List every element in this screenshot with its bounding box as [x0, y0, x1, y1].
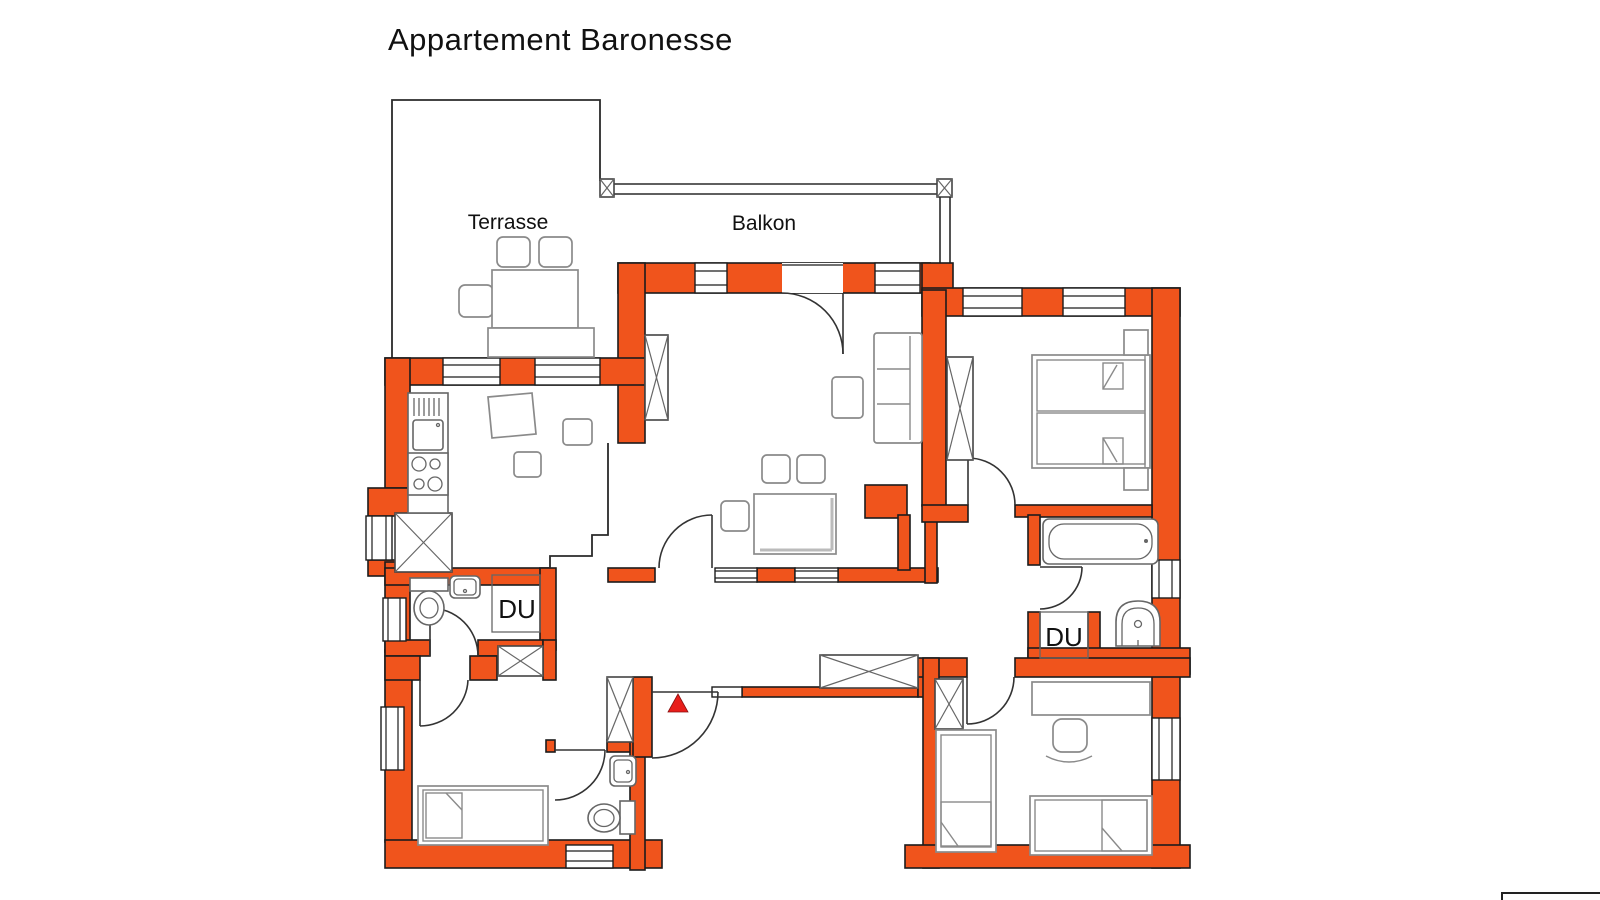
sofa [874, 333, 922, 443]
double-bed [1032, 330, 1150, 490]
kitchen-unit [408, 393, 448, 513]
terrace-furniture [459, 237, 594, 357]
label-du-left: DU [498, 594, 536, 624]
kitchen-partition [550, 443, 608, 568]
wardrobe-bedroom-br-icon [935, 679, 963, 729]
label-du-right: DU [1045, 622, 1083, 652]
wardrobe-living-icon [645, 335, 668, 420]
label-terrasse: Terrasse [468, 211, 549, 234]
kitchen-table [488, 393, 592, 477]
wardrobe-entrance-icon [607, 677, 633, 742]
label-balkon: Balkon [732, 212, 796, 235]
washbasin-wc-icon [610, 756, 636, 786]
page-corner-artifact [1502, 893, 1600, 900]
shaft-bath-left [498, 646, 543, 676]
closet-hall-icon [820, 655, 918, 688]
dining-table-group [721, 455, 836, 554]
toilet-left-icon [410, 578, 448, 625]
entrance-marker [668, 694, 688, 712]
single-bed-br-horizontal [1030, 796, 1152, 855]
floor-plan-drawing: Terrasse Balkon DU DU [0, 0, 1600, 900]
nightstand [1124, 330, 1148, 355]
nightstand [1124, 468, 1148, 490]
washbasin-left-icon [450, 576, 480, 598]
armchair [832, 377, 863, 418]
desk-group [1032, 682, 1150, 762]
floor-plan-canvas: Appartement Baronesse [0, 0, 1600, 900]
single-bed-bl [418, 786, 548, 845]
bathtub-icon [1043, 519, 1158, 564]
shaft-kitchen [395, 513, 452, 572]
kitchen-sink-icon [413, 420, 443, 450]
washbasin-right-icon [1116, 601, 1160, 646]
single-bed-br-vertical [936, 730, 996, 852]
toilet-wc-icon [588, 801, 635, 834]
wardrobe-bedroom-tr-icon [947, 357, 973, 460]
